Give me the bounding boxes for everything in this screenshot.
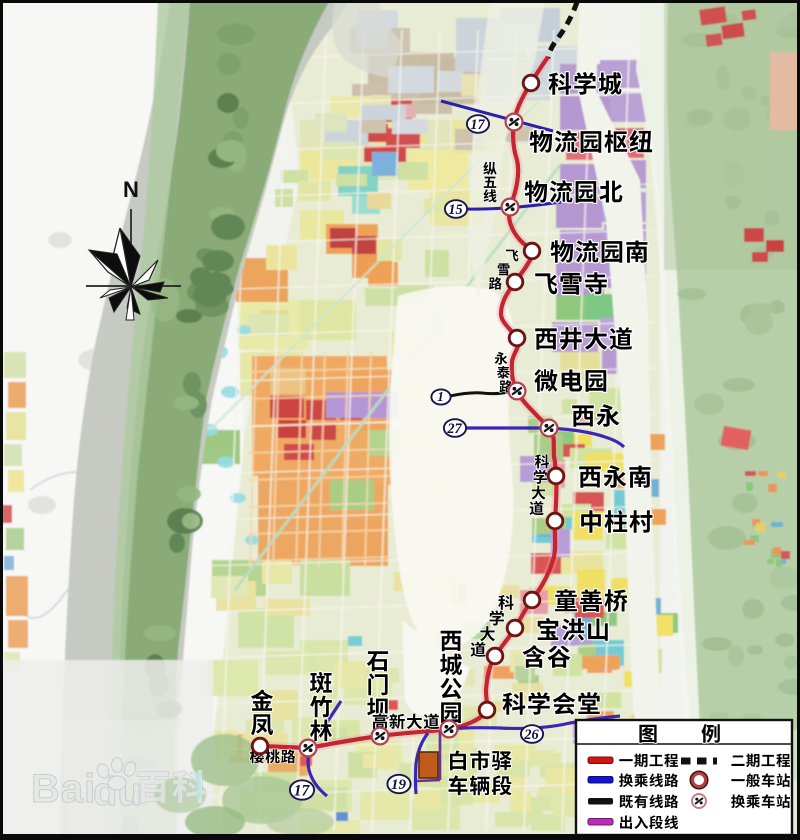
svg-text:27: 27 [446,421,462,437]
svg-text:17: 17 [470,117,485,133]
svg-text:15: 15 [448,202,462,218]
svg-text:1: 1 [437,389,444,404]
svg-text:19: 19 [391,777,407,793]
svg-text:17: 17 [294,782,311,799]
svg-text:N: N [123,177,139,202]
svg-text:26: 26 [523,727,539,743]
svg-text:Bai: Bai [31,767,96,811]
